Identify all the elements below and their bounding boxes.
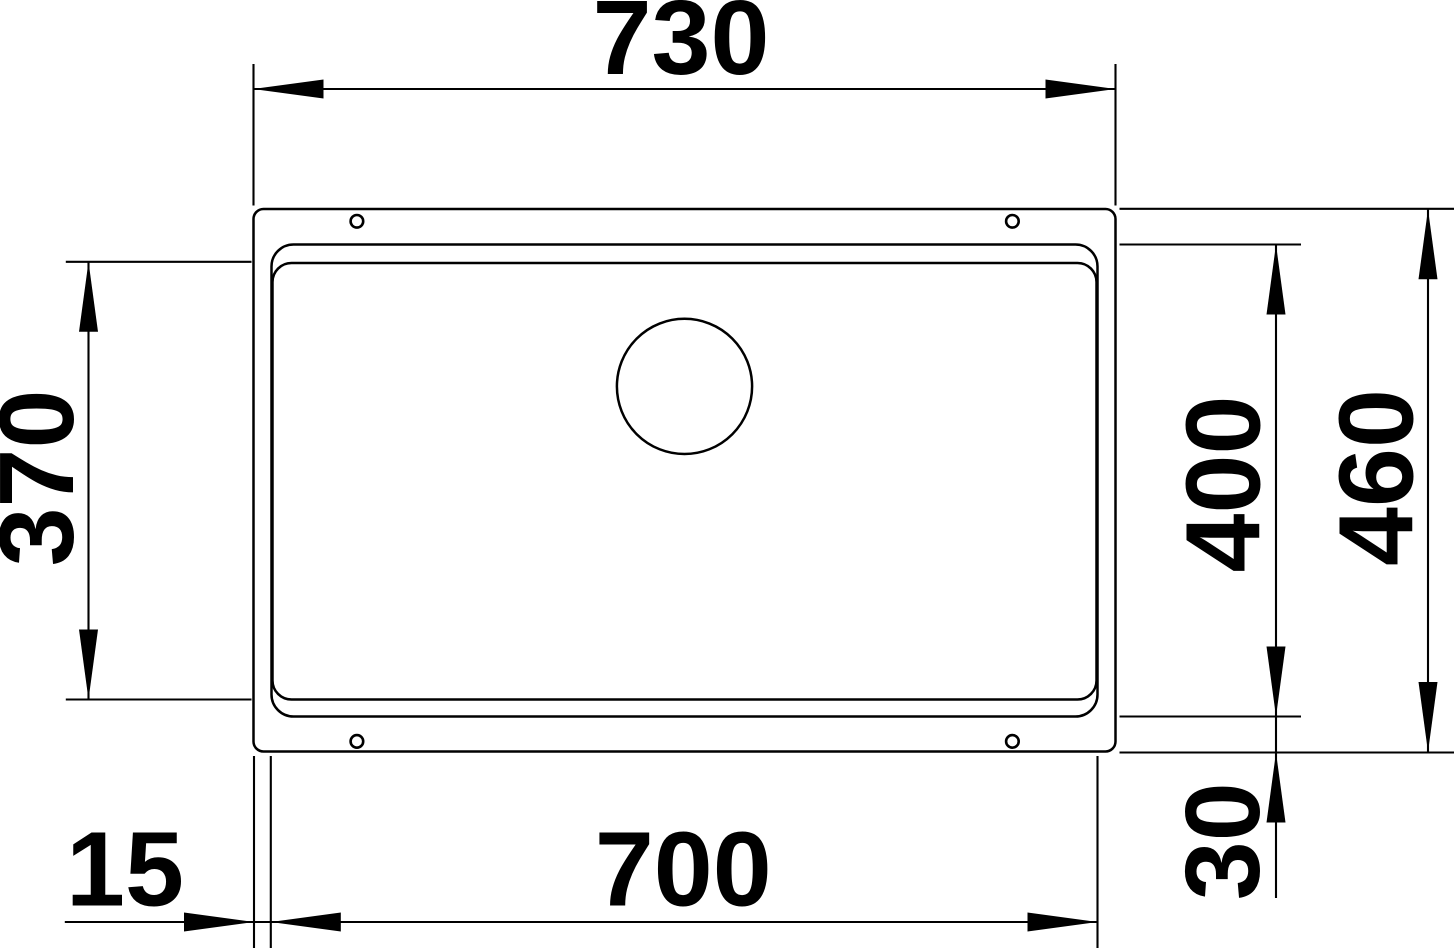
svg-text:30: 30 <box>1164 782 1282 900</box>
svg-text:15: 15 <box>66 811 184 929</box>
svg-text:370: 370 <box>0 390 96 567</box>
svg-text:700: 700 <box>595 811 772 929</box>
svg-text:400: 400 <box>1165 396 1283 573</box>
svg-text:730: 730 <box>593 0 770 97</box>
svg-text:460: 460 <box>1318 389 1436 566</box>
